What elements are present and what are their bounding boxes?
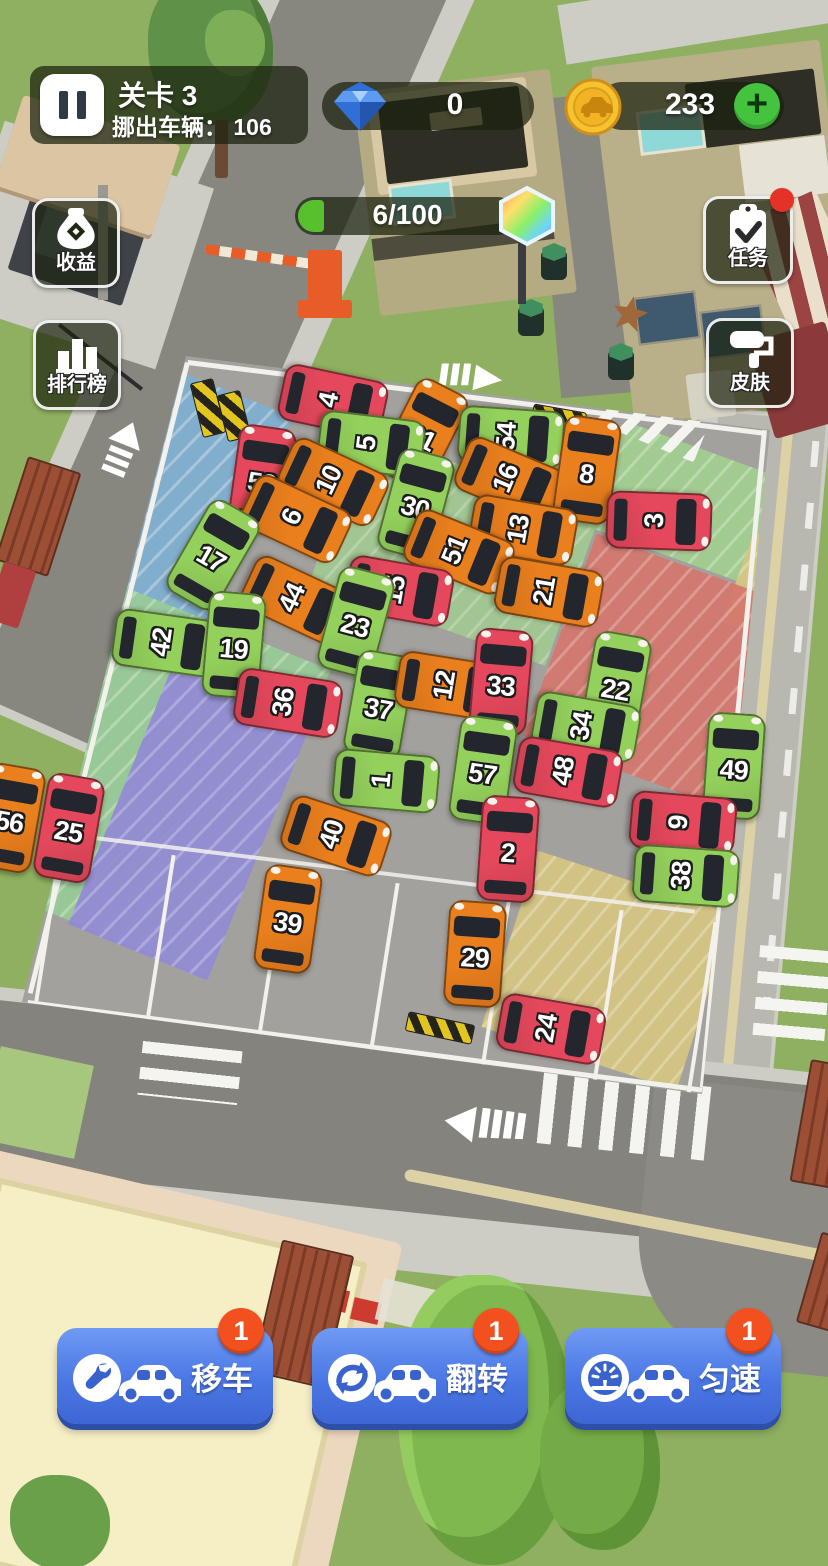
car-rear-window — [0, 846, 25, 866]
car-headlight — [31, 771, 42, 780]
car-number: 56 — [0, 802, 40, 843]
skins-label: 皮肤 — [730, 373, 770, 393]
uniform-speed-badge: 1 — [726, 1308, 772, 1354]
car-headlight — [437, 612, 446, 623]
badge-count: 1 — [233, 1316, 248, 1347]
leaderboard-button[interactable]: 排行榜 — [33, 320, 121, 410]
flip-label: 翻转 — [446, 1354, 508, 1399]
move-car-badge: 1 — [218, 1308, 264, 1354]
car-headlight — [441, 459, 452, 468]
clipboard-check-icon — [721, 201, 775, 255]
car-headlight — [90, 781, 101, 790]
car-headlight — [624, 748, 633, 759]
car-number: 25 — [37, 812, 100, 853]
rotate-car-icon — [326, 1346, 436, 1406]
car-headlight — [606, 793, 615, 804]
car-rear-window — [503, 1001, 523, 1045]
tasks-label: 任务 — [728, 249, 768, 269]
car-headlight — [503, 722, 514, 730]
car-rear-window — [451, 984, 494, 1000]
car-number: 21 — [524, 560, 565, 623]
car[interactable]: 2 — [475, 794, 540, 904]
car-windshield — [712, 727, 759, 750]
car-number: 3 — [638, 491, 671, 550]
car-headlight — [53, 775, 64, 784]
car-rear-window — [640, 852, 656, 895]
car-rear-window — [119, 616, 138, 659]
car-headlight — [702, 499, 709, 509]
income-button[interactable]: 收益 — [32, 198, 120, 288]
car-headlight — [369, 863, 379, 875]
tree — [10, 1475, 110, 1566]
car-headlight — [363, 652, 374, 661]
car-windshield — [567, 430, 615, 456]
car-number: 57 — [451, 755, 513, 794]
car-windshield — [526, 415, 549, 462]
car-rear-window — [261, 948, 304, 967]
car-headlight — [247, 519, 259, 530]
car-rear-window — [538, 699, 558, 743]
car-windshield — [213, 606, 261, 630]
car[interactable]: 24 — [494, 991, 608, 1067]
progress-label: 6/100 — [340, 199, 475, 231]
car[interactable]: 36 — [231, 666, 345, 740]
car-headlight — [381, 826, 391, 838]
car-headlight — [333, 686, 341, 697]
car-rear-window — [285, 371, 306, 415]
car-headlight — [594, 576, 603, 587]
car-rear-window — [501, 564, 521, 608]
car-rear-window — [520, 744, 540, 788]
move-car-label: 移车 — [191, 1354, 253, 1399]
car-windshield — [268, 879, 316, 905]
car-rear-window — [41, 856, 85, 876]
car-number: 8 — [555, 455, 617, 494]
diamond-icon — [330, 78, 390, 134]
car-headlight — [555, 416, 563, 426]
car-windshield — [562, 572, 590, 621]
car-headlight — [214, 593, 225, 601]
wrench-car-icon — [71, 1346, 181, 1406]
car-headlight — [561, 551, 570, 562]
flip-badge: 1 — [473, 1308, 519, 1354]
tasks-notification-dot — [770, 188, 794, 212]
badge-count: 1 — [741, 1316, 756, 1347]
car-headlight — [362, 513, 373, 525]
car-headlight — [525, 800, 535, 808]
car-windshield — [698, 802, 722, 850]
car-headlight — [341, 515, 352, 527]
car-headlight — [600, 633, 611, 642]
leaderboard-label: 排行榜 — [47, 375, 107, 395]
car-windshield — [701, 854, 724, 901]
car-headlight — [587, 613, 596, 624]
car-headlight — [631, 711, 640, 722]
car-number: 9 — [661, 792, 697, 852]
car-number: 23 — [323, 604, 387, 649]
car-rear-window — [283, 444, 313, 488]
car-number: 36 — [264, 671, 304, 733]
car-headlight — [378, 386, 387, 397]
car-headlight — [596, 1013, 605, 1024]
moneybag-icon — [48, 203, 104, 259]
pause-icon — [59, 91, 68, 119]
car-headlight — [308, 871, 319, 879]
car-number: 49 — [704, 753, 764, 788]
car-headlight — [0, 765, 5, 774]
goal-label: 挪出车辆： 106 — [112, 108, 272, 142]
car-windshield — [49, 788, 98, 816]
car-headlight — [607, 422, 618, 430]
car-number: 39 — [256, 904, 318, 943]
car-windshield — [480, 643, 528, 667]
badge-count: 1 — [488, 1316, 503, 1347]
car-windshield — [301, 683, 328, 732]
car[interactable]: 39 — [252, 862, 324, 975]
car-headlight — [613, 756, 622, 767]
car-rear-window — [636, 798, 653, 841]
car-rear-window — [339, 756, 356, 799]
car-windshield — [412, 571, 440, 620]
uniform-speed-label: 匀速 — [699, 1354, 761, 1399]
car-headlight — [378, 478, 389, 490]
car-headlight — [344, 567, 355, 576]
car-headlight — [427, 799, 435, 810]
progress-fill — [298, 200, 324, 232]
car-headlight — [519, 633, 530, 641]
car-windshield — [463, 730, 511, 756]
car-windshield — [453, 915, 500, 938]
car-headlight — [727, 803, 735, 814]
car-windshield — [486, 810, 533, 833]
car-headlight — [404, 449, 415, 458]
car-number: 1 — [364, 750, 400, 810]
car-headlight — [637, 639, 648, 648]
car-headlight — [252, 596, 263, 604]
add-coins-button[interactable]: + — [734, 83, 780, 129]
car-headlight — [492, 905, 502, 913]
rainbow-gem-icon[interactable] — [496, 185, 558, 247]
car-number: 24 — [526, 997, 567, 1060]
car-headlight — [444, 575, 453, 586]
car-rear-window — [613, 498, 627, 540]
car-number: 33 — [470, 669, 530, 705]
car-windshield — [564, 1009, 592, 1058]
car-rear-window — [240, 675, 259, 719]
car-headlight — [244, 426, 255, 434]
car-rear-window — [287, 802, 312, 846]
car-number: 38 — [664, 846, 699, 906]
pause-button[interactable] — [40, 74, 104, 136]
car-number: 12 — [425, 654, 465, 716]
car-headlight — [589, 1050, 598, 1061]
car-windshield — [581, 752, 609, 801]
car-headlight — [713, 714, 723, 722]
car-number: 19 — [203, 632, 263, 668]
car-windshield — [0, 778, 39, 806]
coin-icon — [564, 78, 622, 136]
car-rear-window — [409, 516, 437, 560]
car-rear-window — [401, 658, 420, 702]
car[interactable]: 1 — [331, 747, 442, 814]
car-headlight — [727, 893, 735, 903]
car-headlight — [730, 855, 738, 865]
skins-button[interactable]: 皮肤 — [706, 318, 794, 408]
car-headlight — [327, 724, 335, 735]
car-headlight — [421, 379, 433, 390]
car-windshield — [401, 760, 425, 808]
car-headlight — [270, 866, 281, 874]
car-number: 48 — [543, 740, 584, 803]
car-headlight — [325, 550, 336, 562]
car-headlight — [568, 514, 577, 525]
car-headlight — [481, 630, 492, 638]
car[interactable]: 3 — [605, 490, 713, 552]
car-number: 29 — [445, 941, 505, 976]
car-headlight — [465, 717, 476, 725]
car-rear-window — [460, 443, 488, 487]
plus-icon: + — [746, 85, 768, 123]
car[interactable]: 29 — [442, 899, 507, 1009]
car-headlight — [701, 536, 708, 546]
car-windshield — [180, 623, 206, 671]
car-windshield — [675, 499, 697, 546]
car[interactable]: 21 — [492, 554, 606, 630]
game-stage: 4315545210301686133175121154423421936371… — [0, 0, 828, 1566]
car-headlight — [454, 902, 464, 910]
coin-count: 233 — [648, 88, 732, 122]
car-headlight — [381, 577, 392, 586]
barchart-icon — [49, 327, 105, 379]
car-headlight — [455, 396, 467, 407]
car-windshield — [536, 510, 564, 559]
car-headlight — [751, 717, 761, 725]
car-headlight — [415, 425, 423, 436]
car[interactable]: 38 — [631, 843, 741, 908]
car-headlight — [282, 431, 293, 439]
car-rear-window — [484, 879, 527, 895]
car-number: 42 — [142, 611, 181, 673]
car-headlight — [569, 417, 580, 425]
car-headlight — [214, 500, 226, 511]
income-label: 收益 — [56, 253, 96, 273]
car-number: 2 — [478, 836, 538, 871]
paint-roller-icon — [722, 323, 778, 379]
diamond-count: 0 — [430, 88, 480, 122]
speedometer-car-icon — [579, 1346, 689, 1406]
car-headlight — [487, 797, 497, 805]
car-headlight — [430, 761, 438, 772]
car-windshield — [596, 646, 645, 674]
